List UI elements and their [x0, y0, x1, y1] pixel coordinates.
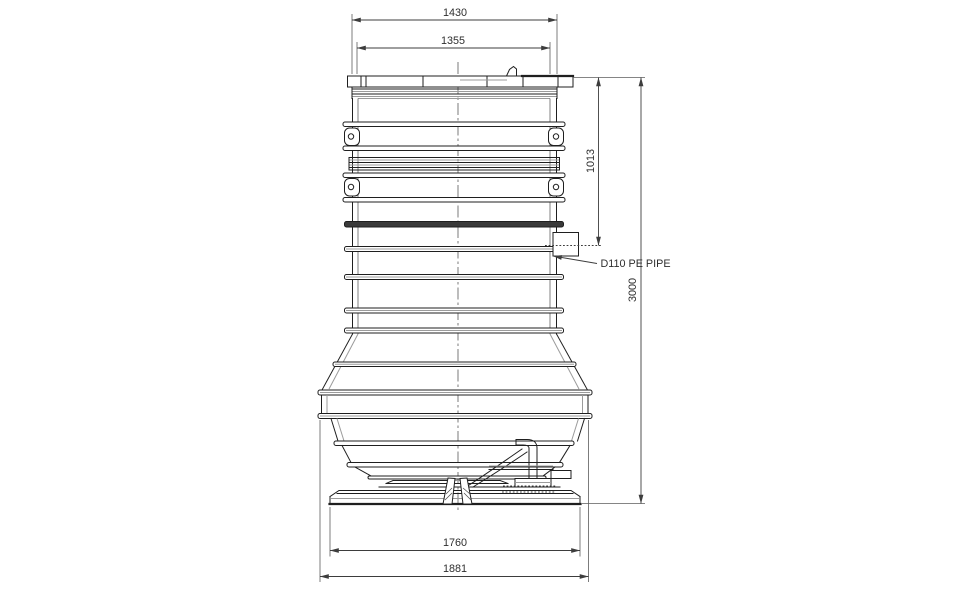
- shaft-ribs: [345, 222, 564, 334]
- dim-label-1013: 1013: [585, 149, 597, 173]
- lid-handle: [507, 67, 517, 77]
- base-plate: [330, 491, 581, 505]
- base-ring-section: [318, 390, 592, 419]
- tank-lid: [348, 67, 574, 88]
- dim-label-3000: 3000: [627, 278, 639, 302]
- technical-drawing: 1430 1355: [0, 0, 976, 600]
- lifting-lug-right: [549, 128, 564, 146]
- dim-label-1355: 1355: [441, 35, 465, 47]
- flange-ring-lower: [343, 173, 565, 202]
- flange-ring-upper: [343, 122, 565, 151]
- dim-label-1881: 1881: [443, 563, 467, 575]
- lid-neck-rings: [352, 87, 557, 99]
- flare-cone: [322, 334, 588, 390]
- dim-label-1430: 1430: [443, 7, 467, 19]
- inlet-pipe-callout: D110 PE PIPE: [553, 256, 671, 270]
- dimension-top-inner: 1355: [357, 35, 550, 74]
- drawing-sheet: 1430 1355: [0, 0, 976, 600]
- inlet-pipe-label: D110 PE PIPE: [601, 258, 671, 270]
- lifting-lug-left: [345, 179, 360, 197]
- dimension-overall-height: 3000: [582, 78, 645, 504]
- lifting-lug-right: [549, 179, 564, 197]
- lifting-lug-left: [345, 128, 360, 146]
- dim-label-1760: 1760: [443, 537, 467, 549]
- dimension-inlet-drop: 1013: [573, 78, 645, 246]
- dimension-base-plate: 1760: [330, 507, 580, 557]
- inlet-pipe-stub: [545, 233, 601, 257]
- corrugated-joint-band: [349, 158, 560, 171]
- shaft-walls: [353, 99, 557, 335]
